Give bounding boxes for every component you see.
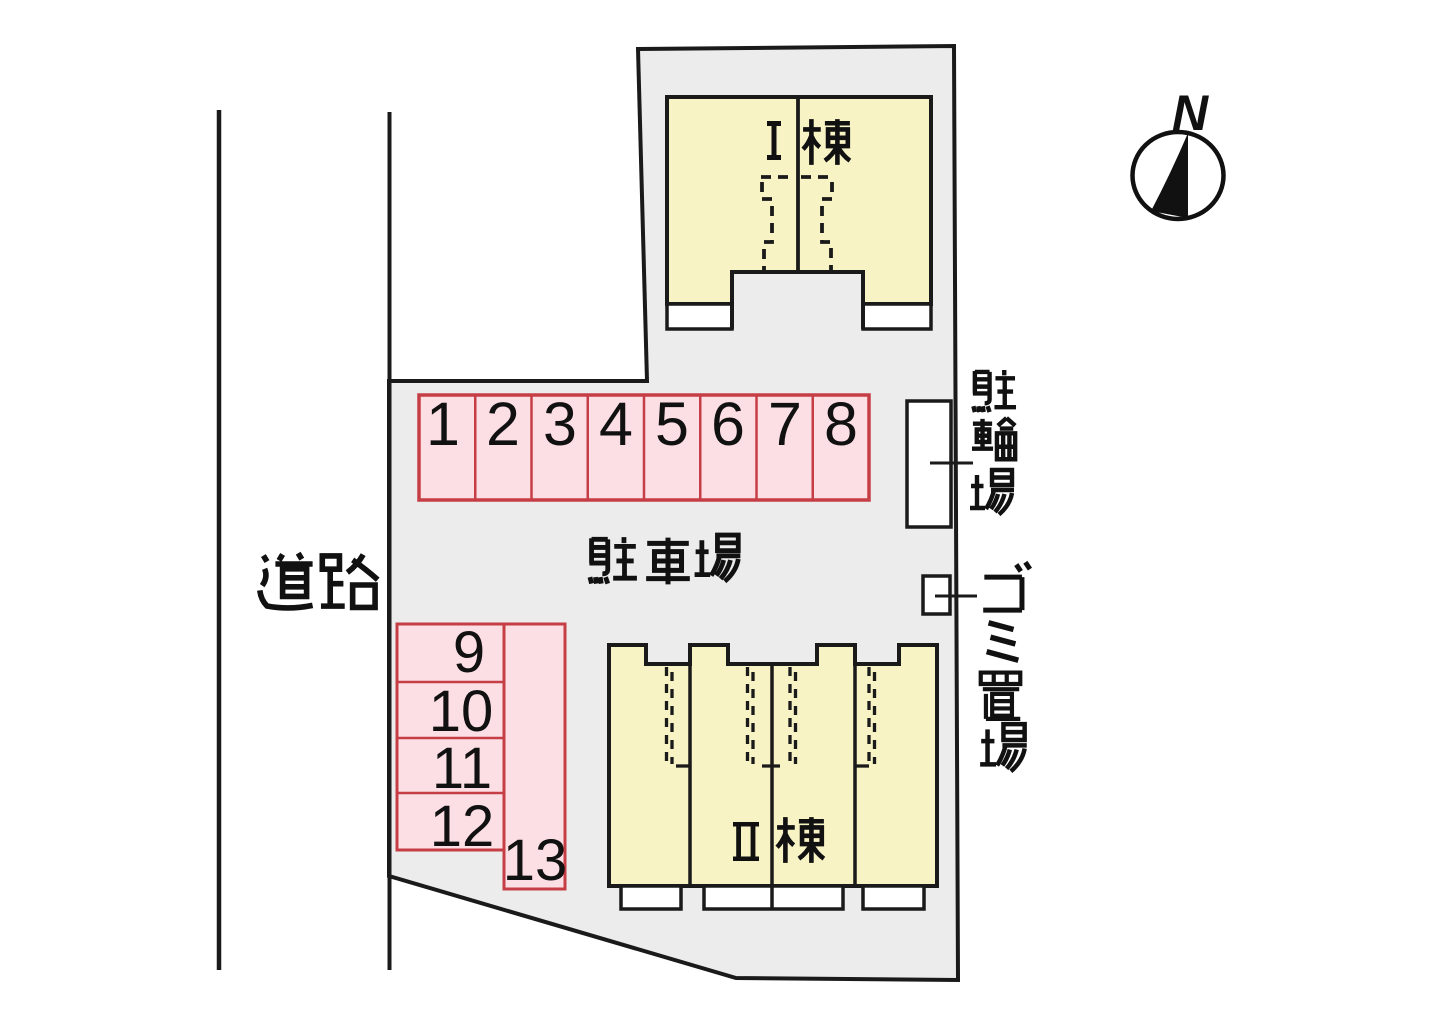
svg-text:5: 5 [655, 390, 689, 458]
svg-text:8: 8 [824, 390, 858, 458]
svg-text:1: 1 [426, 390, 460, 458]
svg-text:4: 4 [599, 390, 633, 458]
svg-text:13: 13 [503, 828, 568, 893]
svg-text:3: 3 [543, 390, 577, 458]
svg-text:6: 6 [711, 390, 745, 458]
svg-text:9: 9 [453, 620, 485, 685]
svg-text:10: 10 [429, 679, 494, 744]
svg-text:2: 2 [486, 390, 520, 458]
svg-text:11: 11 [432, 736, 492, 801]
svg-text:12: 12 [430, 794, 495, 859]
svg-text:N: N [1172, 85, 1209, 141]
svg-text:7: 7 [768, 390, 802, 458]
